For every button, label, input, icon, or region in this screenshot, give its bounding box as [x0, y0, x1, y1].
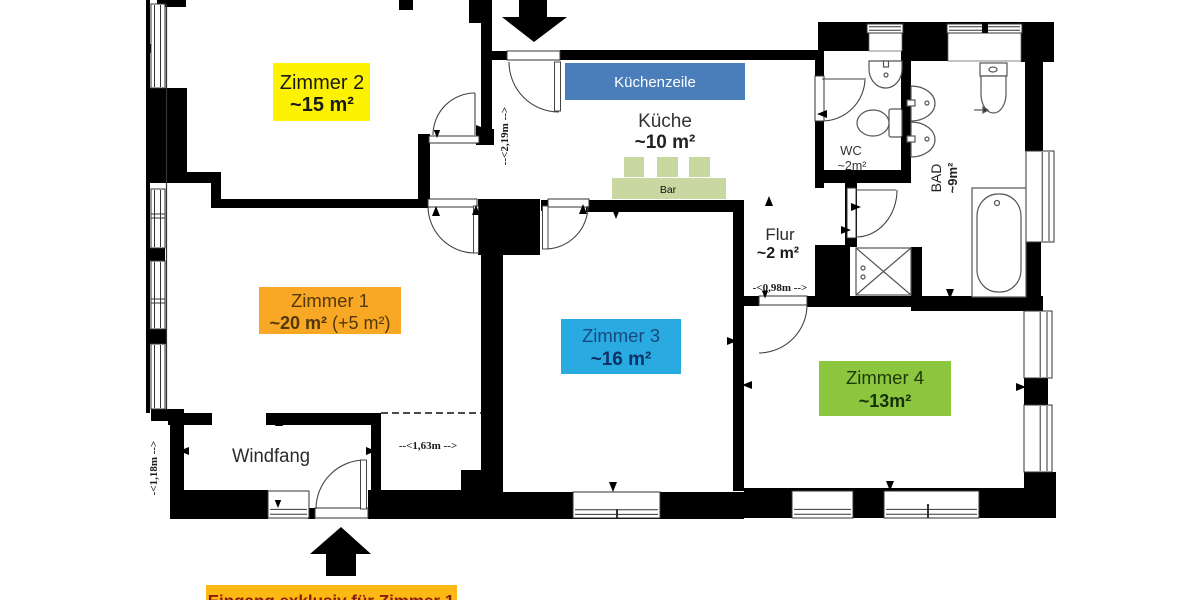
svg-text:~2m²: ~2m²: [838, 159, 867, 173]
svg-text:Flur: Flur: [765, 225, 795, 244]
svg-text:~16 m²: ~16 m²: [591, 349, 652, 370]
svg-text:--<1,63m -->: --<1,63m -->: [399, 440, 457, 452]
svg-text:~2 m²: ~2 m²: [757, 245, 799, 262]
svg-text:~9m²: ~9m²: [945, 162, 960, 193]
svg-text:-<0,98m -->: -<0,98m -->: [753, 282, 808, 294]
svg-text:Küchenzeile: Küchenzeile: [614, 74, 696, 91]
svg-text:~15 m²: ~15 m²: [290, 94, 354, 116]
svg-text:Windfang: Windfang: [232, 446, 310, 467]
svg-text:~10 m²: ~10 m²: [635, 132, 696, 153]
svg-text:Küche: Küche: [638, 111, 692, 132]
svg-text:~13m²: ~13m²: [859, 391, 912, 411]
svg-text:Bar: Bar: [660, 184, 677, 196]
svg-text:BAD: BAD: [928, 164, 944, 193]
svg-text:~20 m² (+5 m²): ~20 m² (+5 m²): [269, 313, 390, 333]
svg-text:-<1,18m -->: -<1,18m -->: [148, 441, 160, 496]
svg-text:Zimmer 1: Zimmer 1: [291, 290, 369, 311]
svg-text:Zimmer 3: Zimmer 3: [582, 325, 660, 346]
svg-text:Zimmer 4: Zimmer 4: [846, 367, 924, 388]
svg-text:Zimmer 2: Zimmer 2: [280, 72, 364, 94]
svg-text:Eingang exklusiv für Zimmer 1: Eingang exklusiv für Zimmer 1: [208, 592, 455, 600]
svg-text:--<2,19m -->: --<2,19m -->: [499, 107, 511, 165]
svg-text:WC: WC: [840, 143, 862, 158]
